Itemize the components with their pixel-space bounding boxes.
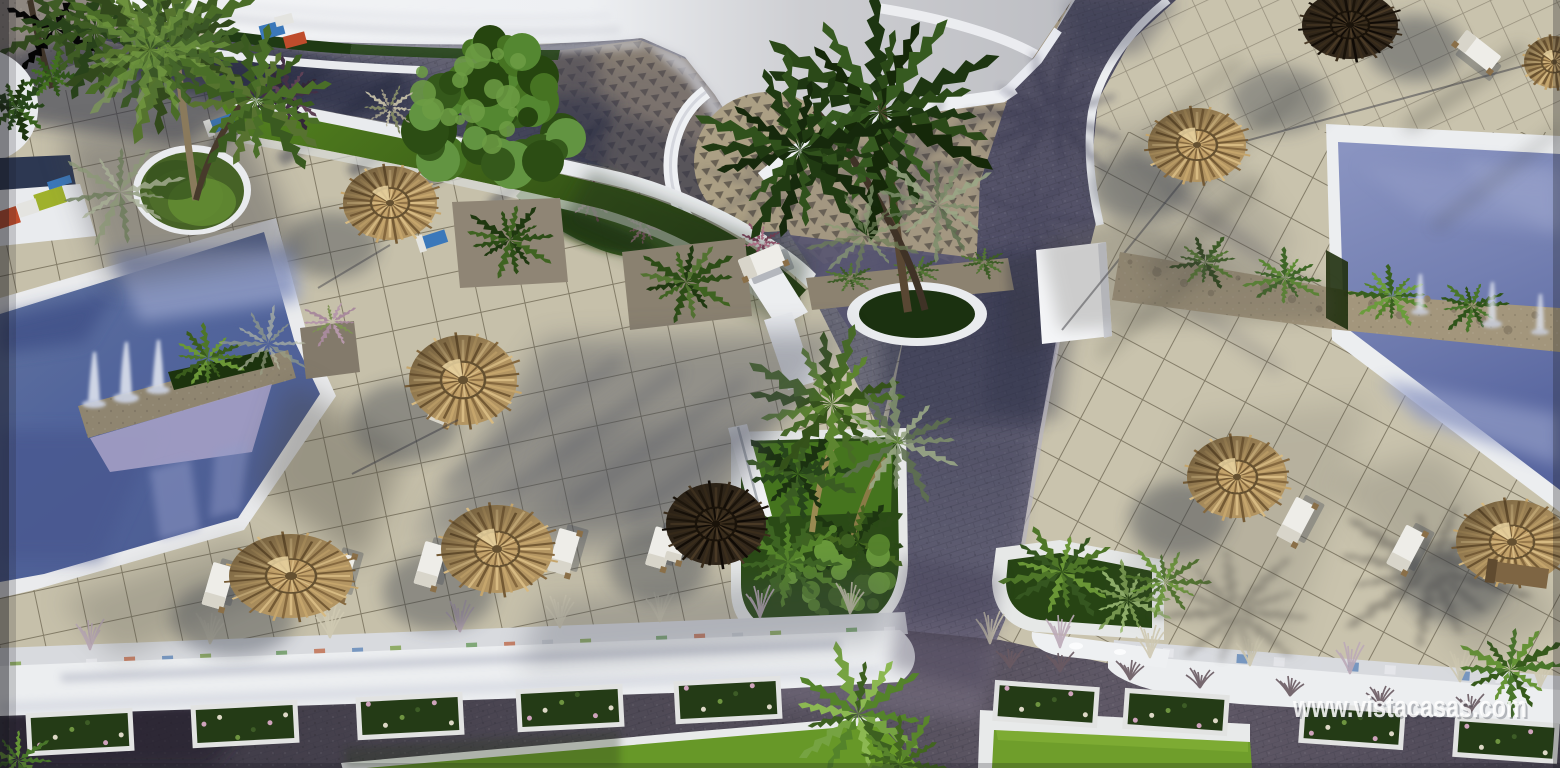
svg-text:www.vistacasas.com: www.vistacasas.com bbox=[1292, 689, 1527, 724]
